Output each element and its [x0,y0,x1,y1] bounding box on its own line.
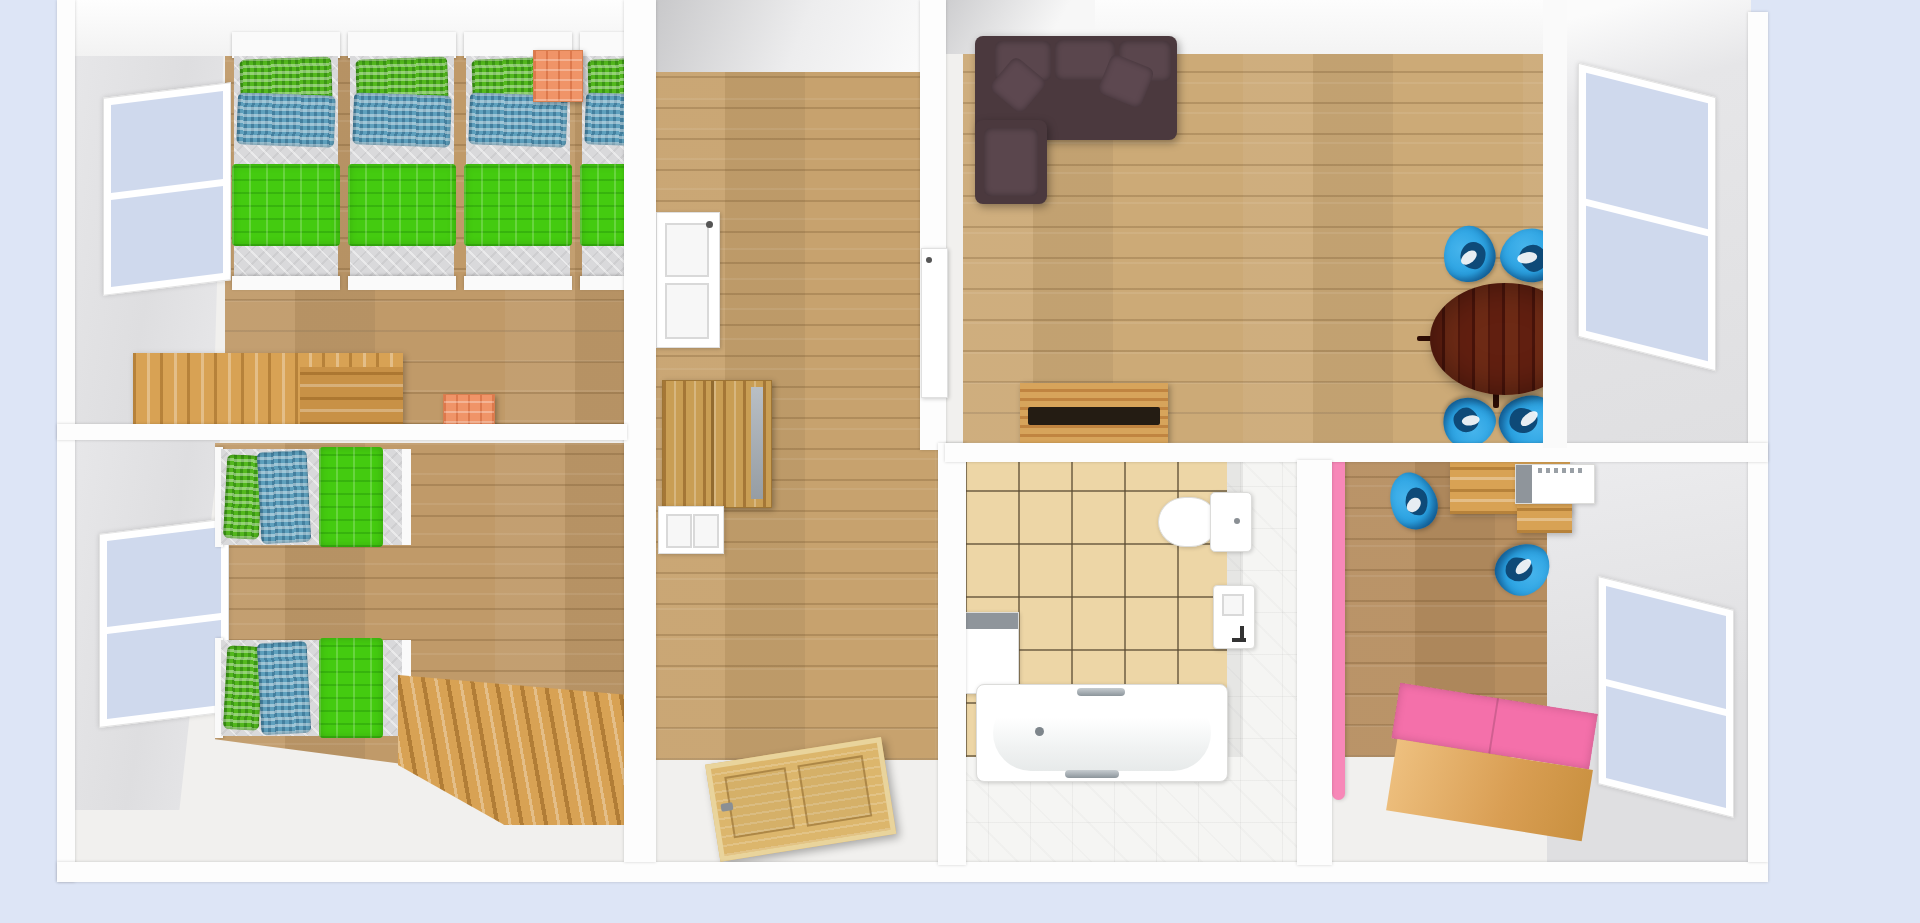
washing-machine [961,612,1019,694]
room-bedroom-b [75,440,640,865]
wardrobe [662,380,772,508]
sideboard [1020,383,1168,443]
door-handle [706,221,713,228]
room-bedroom-a [75,0,640,425]
grab-rail [1077,688,1125,696]
sink-inset [1222,594,1244,616]
exterior-wall-bottom [57,862,1768,882]
toilet [1158,492,1250,550]
single-bed [215,447,411,547]
door-panel [693,514,719,548]
room-hallway [640,0,960,865]
window-icon [99,518,229,728]
blue-pillow [257,641,312,735]
green-duvet [232,164,340,246]
footboard [348,276,456,290]
door-panel [665,223,709,277]
exterior-wall-right [1748,12,1768,862]
headboard [232,32,340,58]
blue-pillow [257,450,312,544]
window-pane [107,620,221,719]
toilet-tank [1210,492,1252,552]
window-pane [1586,73,1708,229]
flush-button [1234,518,1240,524]
interior-door [658,506,724,554]
single-bed [232,32,340,290]
grab-rail [1065,770,1119,778]
single-bed [348,32,456,290]
footboard [464,276,572,290]
footboard [232,276,340,290]
toilet-bowl [1158,497,1218,547]
wardrobe-mirror [751,387,763,499]
sink [1213,585,1255,649]
wall-bathroom-study [1297,460,1332,865]
pink-shelf [1332,455,1345,800]
window-pane [107,527,221,626]
room-living [945,0,1545,445]
door-panel [724,767,795,838]
room-study [1332,455,1748,865]
window-pane [111,186,223,287]
computer [1515,464,1595,504]
hall-living-door [921,248,948,398]
corner-sofa [975,36,1177,204]
door-panel [797,755,872,827]
drain-icon [1035,727,1044,736]
blue-pillow [236,92,336,147]
sofa-chaise-cushion [984,128,1038,196]
wall-living-south [945,443,1768,462]
wall-hallway-bathroom [938,443,966,865]
wall-living-right-edge [1543,0,1567,448]
exterior-wall-left [57,0,75,882]
window-pane [111,91,223,192]
sideboard-top-unit [1028,407,1160,425]
window-icon [103,82,231,296]
nightstand [443,394,495,425]
wardrobe-divider [711,381,714,507]
top-wall-face [655,0,945,72]
door-panel [666,514,692,548]
green-duvet [348,164,456,246]
washer-lid [962,613,1018,629]
wall-between-bedrooms [57,424,627,440]
door-panel [665,283,709,339]
bench-seam [1488,698,1499,754]
footboard [402,449,411,545]
door-handle [926,257,932,263]
tub-basin [993,695,1211,771]
interior-door [656,212,720,348]
corner-desk [398,675,640,825]
wall-bedrooms-hallway [624,0,656,862]
room-bathroom [946,462,1300,865]
blue-pillow [352,92,452,147]
computer-buttons [1538,468,1586,473]
computer-side [1516,465,1532,503]
faucet-icon [1232,638,1246,642]
green-duvet [464,164,572,246]
bathtub [976,684,1228,782]
green-duvet [319,447,383,547]
study-desk-extension [1517,503,1572,533]
desk-extension [300,367,403,425]
floorplan-render: { "meta": { "app": "3D home design floor… [0,0,1920,923]
window-pane [1586,205,1708,361]
green-duvet [319,638,383,738]
window-icon [1598,576,1734,818]
nightstand [533,50,583,102]
window-icon [1578,63,1716,371]
headboard [348,32,456,58]
single-bed [215,638,411,738]
